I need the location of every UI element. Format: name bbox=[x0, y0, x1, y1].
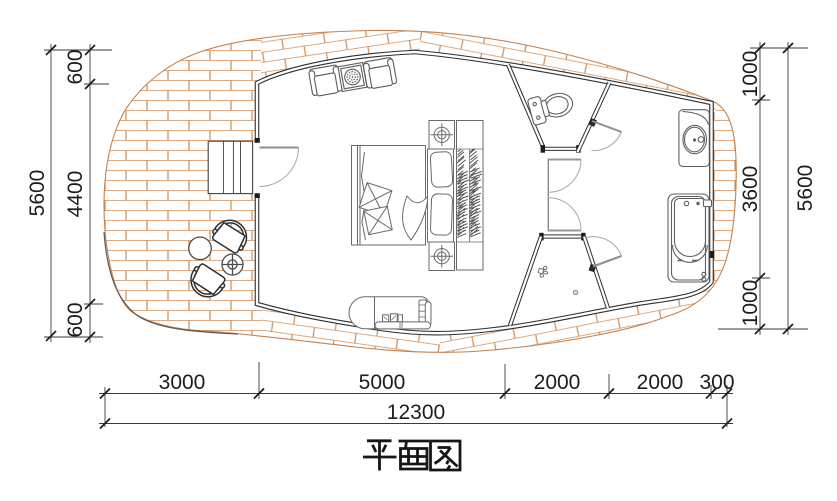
svg-text:300: 300 bbox=[699, 371, 734, 394]
svg-text:3000: 3000 bbox=[159, 371, 206, 394]
svg-text:1000: 1000 bbox=[739, 280, 762, 327]
svg-text:5600: 5600 bbox=[26, 170, 49, 217]
svg-text:3600: 3600 bbox=[739, 166, 762, 213]
svg-text:600: 600 bbox=[64, 49, 87, 84]
svg-text:5600: 5600 bbox=[794, 165, 817, 212]
svg-text:4400: 4400 bbox=[64, 171, 87, 218]
svg-text:600: 600 bbox=[64, 302, 87, 337]
svg-text:2000: 2000 bbox=[534, 371, 581, 394]
svg-text:1000: 1000 bbox=[739, 51, 762, 98]
svg-text:12300: 12300 bbox=[387, 401, 445, 424]
svg-text:2000: 2000 bbox=[637, 371, 684, 394]
svg-text:5000: 5000 bbox=[359, 371, 406, 394]
